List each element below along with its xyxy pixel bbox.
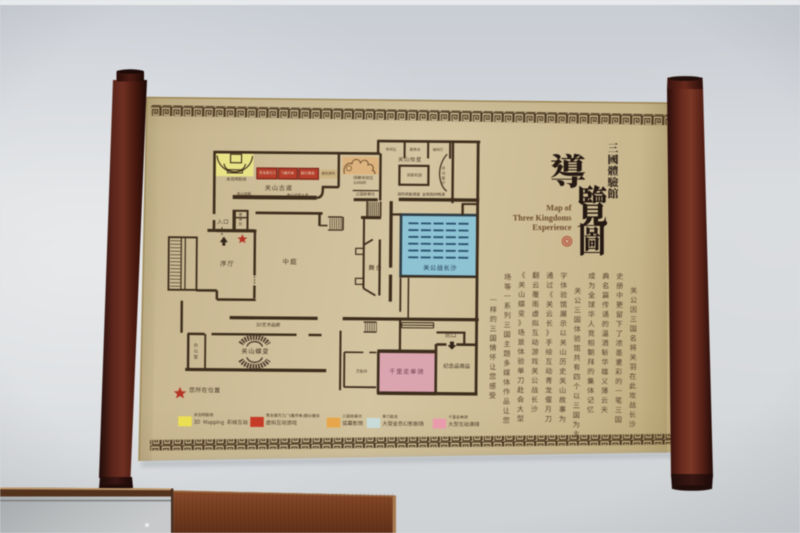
svg-text:Map of: Map of [546, 204, 572, 213]
svg-text:Three Kingdoms: Three Kingdoms [513, 213, 572, 222]
svg-text:Experience: Experience [532, 223, 571, 232]
